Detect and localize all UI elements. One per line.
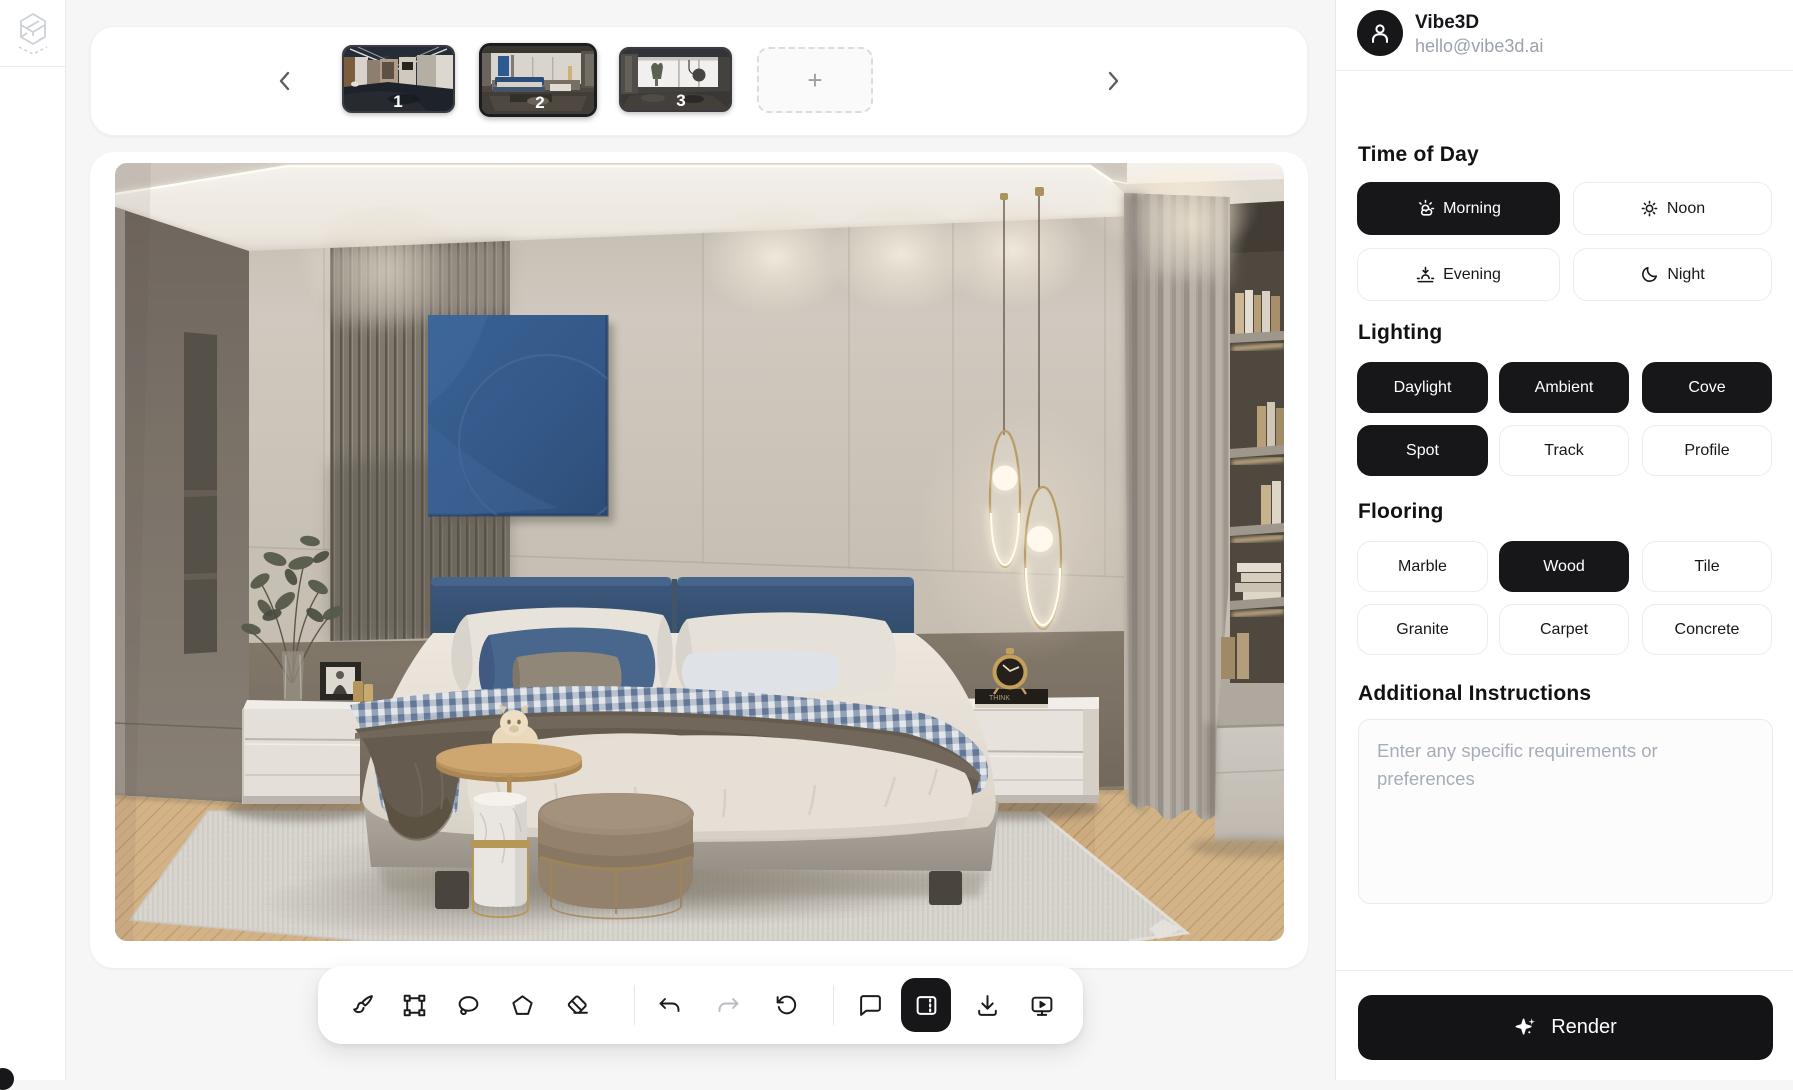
svg-text:3: 3	[676, 91, 685, 110]
svg-text:1: 1	[393, 92, 402, 111]
svg-text:2: 2	[535, 93, 544, 112]
